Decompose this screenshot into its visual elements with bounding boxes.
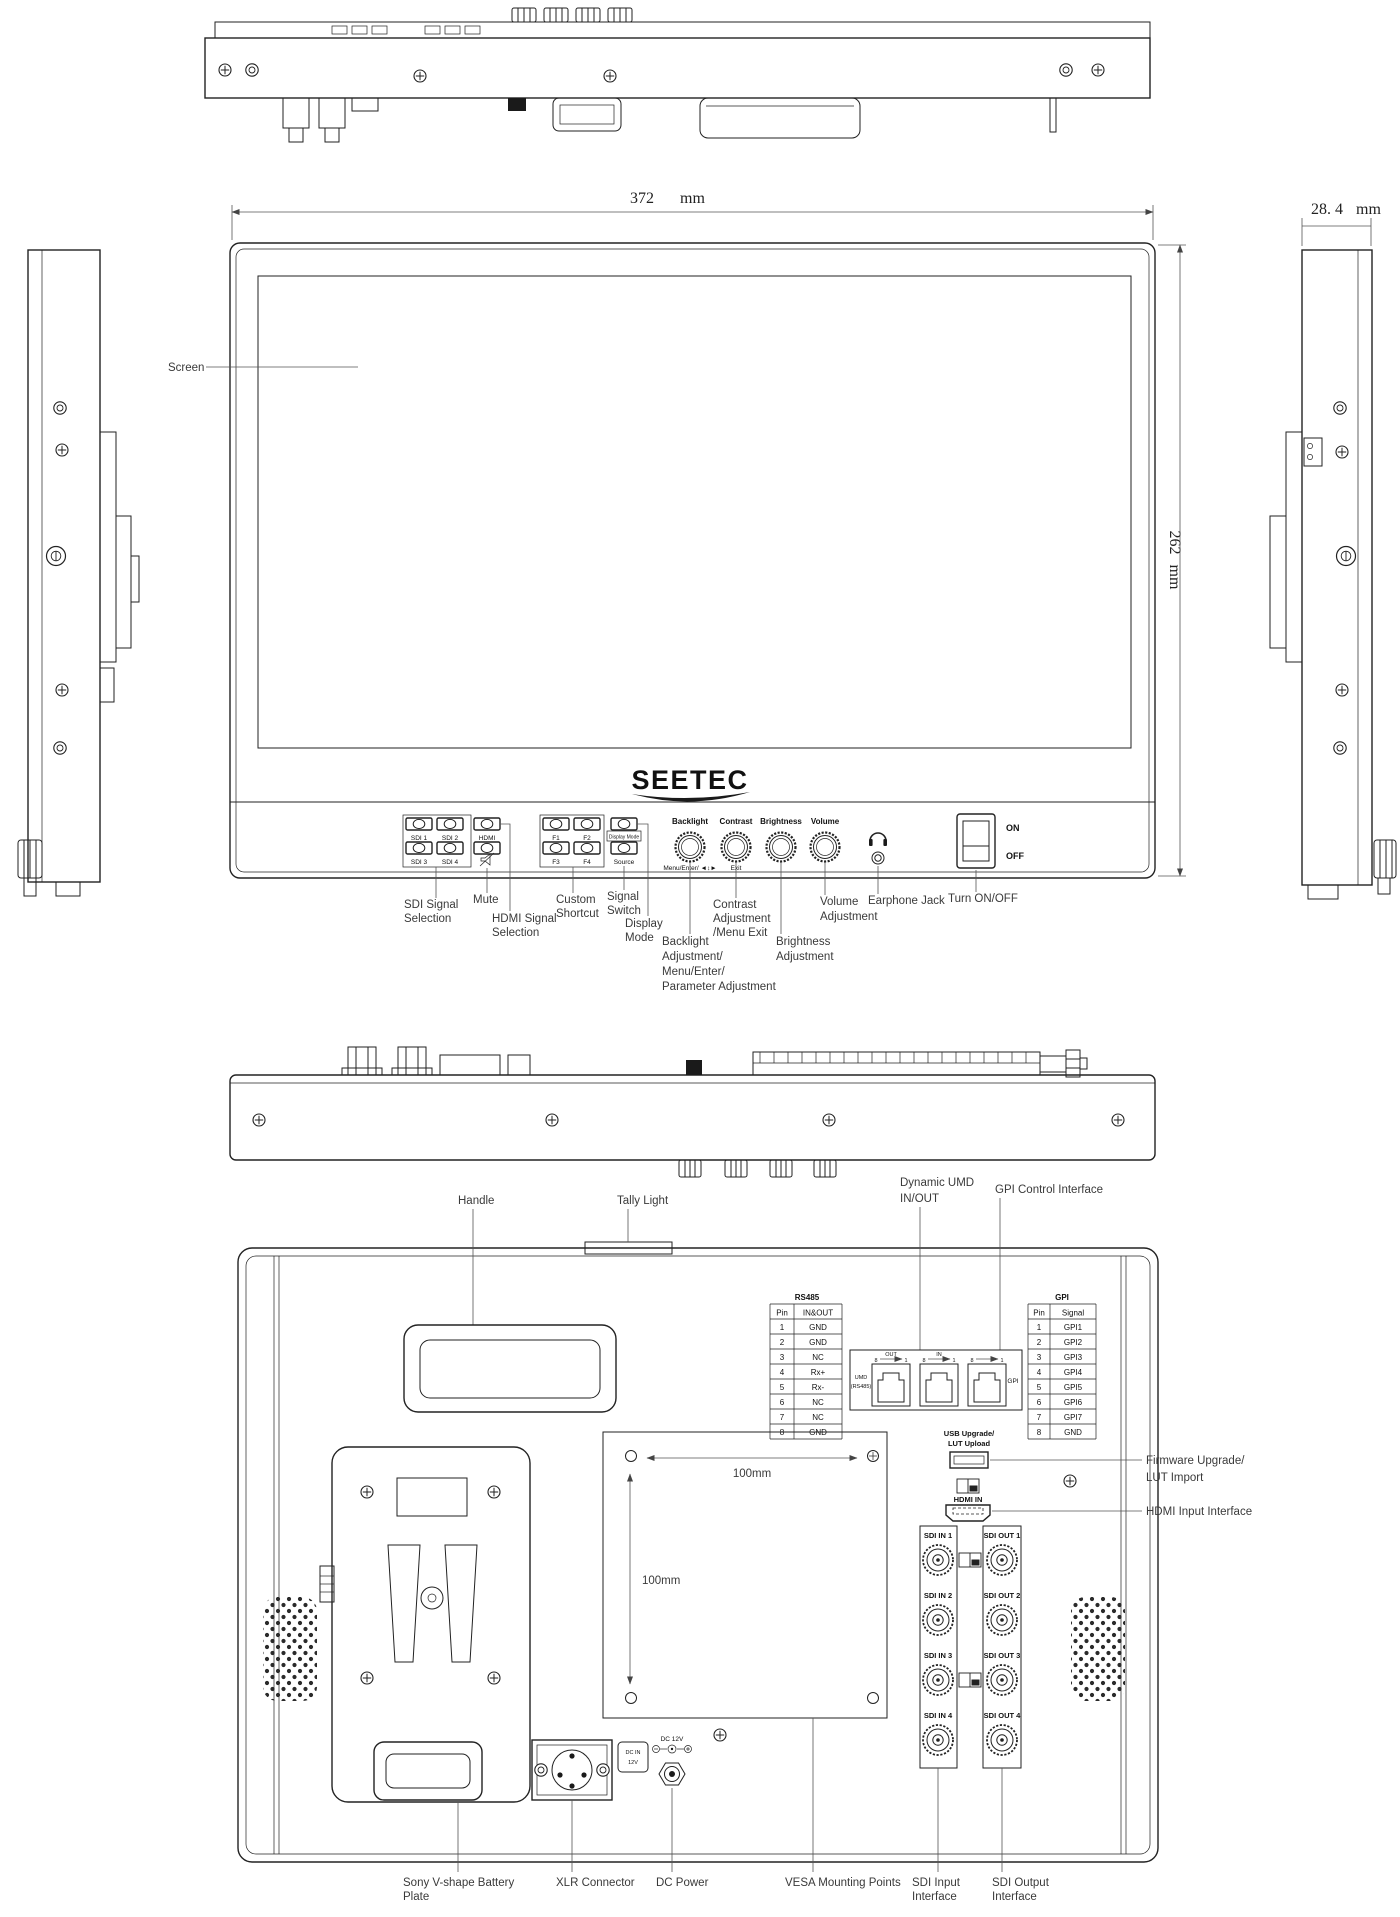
battery-spring-clip: [374, 1742, 482, 1800]
sdi2-label: SDI 2: [442, 835, 459, 842]
screw-icon: [604, 70, 616, 82]
locking-rod: [1040, 1050, 1087, 1077]
usb-port: USB Upgrade/ LUT Upload Firmware Upgrade…: [944, 1429, 1245, 1484]
big-ring-screw-icon: [47, 547, 66, 566]
brightness-knob-label: Brightness: [760, 817, 802, 826]
umd-label: (RS485): [851, 1384, 872, 1390]
in-label: IN: [936, 1352, 942, 1358]
rs485-cell: GND: [809, 1338, 827, 1347]
vesa-100mm-h: 100mm: [733, 1468, 771, 1480]
bottom-knob-stubs: [679, 1160, 836, 1177]
av-icon: [959, 1553, 981, 1567]
gpi-header-signal: Signal: [1062, 1309, 1084, 1318]
f3-button: [543, 842, 569, 854]
bottom-view: [230, 1047, 1155, 1177]
vesa-hole: [868, 1693, 879, 1704]
left-foot-knob: [18, 840, 42, 896]
contrast-knob-label: Contrast: [720, 817, 753, 826]
rs485-header-pin: Pin: [776, 1309, 788, 1318]
vesa-hole-screw: [868, 1451, 879, 1462]
callout-xlr: XLR Connector: [556, 1877, 635, 1889]
f1-label: F1: [552, 835, 560, 842]
gpi-cell: GND: [1064, 1428, 1082, 1437]
rs485-cell: NC: [812, 1413, 824, 1422]
depth-value: 28. 4: [1311, 201, 1343, 218]
umd-label: UMD: [855, 1375, 868, 1381]
sdi-out-2-connector: [987, 1605, 1017, 1635]
ring-screw-icon: [1334, 742, 1346, 754]
gpi-cell: GPI3: [1064, 1353, 1083, 1362]
f-button-group: F1 F2 F3 F4: [540, 815, 604, 867]
callout-handle: Handle: [458, 1195, 494, 1207]
ring-screw-icon: [597, 1764, 609, 1776]
pin8-label: 8: [970, 1358, 973, 1364]
callout-hdmi-in: HDMI Input Interface: [1146, 1506, 1252, 1518]
sdi-in-3-connector: [923, 1665, 953, 1695]
sdi-out-column: SDI OUT 1 SDI OUT 2 SDI OUT 3 SDI OUT 4: [983, 1526, 1021, 1768]
top-view-connectors: [283, 98, 1056, 142]
handle: [404, 1325, 616, 1412]
av-icon: [957, 1479, 979, 1493]
sdi-out-1-connector: [987, 1545, 1017, 1575]
screw-icon: [361, 1672, 373, 1684]
screw-icon: [56, 684, 68, 696]
sdi-in-2-label: SDI IN 2: [924, 1591, 952, 1600]
sdi3-label: SDI 3: [411, 859, 428, 866]
rs485-cell: 1: [780, 1323, 785, 1332]
callout-sdi-signal: SDI Signal: [404, 899, 458, 911]
callout-tally: Tally Light: [617, 1195, 669, 1207]
sdi-in-column: SDI IN 1 SDI IN 2 SDI IN 3 SDI IN 4: [920, 1526, 957, 1768]
brand-logo: SEETEC: [631, 765, 748, 795]
f4-button: [574, 842, 600, 854]
gpi-cell: 7: [1037, 1413, 1042, 1422]
rs485-cell: 5: [780, 1383, 785, 1392]
sdi-in-4-connector: [923, 1725, 953, 1755]
screw-icon: [1336, 684, 1348, 696]
callout-gpi: GPI Control Interface: [995, 1184, 1103, 1196]
ring-screw-icon: [1334, 402, 1346, 414]
v-mount-wedge: [445, 1545, 477, 1662]
screw-icon: [414, 70, 426, 82]
screw-icon: [219, 64, 231, 76]
display-source-column: Display Mode Source: [607, 818, 641, 866]
rs485-header-signal: IN&OUT: [803, 1309, 833, 1318]
display-mode-label: Display Mode: [609, 835, 640, 841]
hdmi-button-column: HDMI: [474, 818, 500, 866]
gpi-title: GPI: [1055, 1293, 1069, 1302]
gpi-cell: GPI4: [1064, 1368, 1083, 1377]
sdi-out-3-connector: [987, 1665, 1017, 1695]
callout-volume: Volume: [820, 896, 858, 908]
sdi2-button: [437, 818, 463, 830]
left-side-view: [18, 250, 139, 896]
gpi-cell: GPI2: [1064, 1338, 1083, 1347]
sdi4-label: SDI 4: [442, 859, 459, 866]
screw-icon: [714, 1729, 726, 1741]
callout-battery: Plate: [403, 1891, 429, 1903]
top-knobs: [512, 8, 632, 22]
rs485-title: RS485: [795, 1293, 820, 1302]
rs485-cell: Rx-: [812, 1383, 825, 1392]
callout-signal-switch: Signal: [607, 891, 639, 903]
sdi-in-1-label: SDI IN 1: [924, 1531, 952, 1540]
rs485-cell: 3: [780, 1353, 785, 1362]
callout-contrast: Adjustment: [713, 913, 771, 925]
hdmi-input: HDMI IN HDMI Input Interface: [946, 1479, 1252, 1521]
front-view: Screen SEETEC SDI 1 SDI 2 SDI 3 SDI 4 HD…: [168, 243, 1155, 993]
seetec-logo: SEETEC: [631, 765, 750, 802]
sdi-in-1-connector: [923, 1545, 953, 1575]
ring-screw-icon: [246, 64, 258, 76]
av-icon: [959, 1673, 981, 1687]
backlight-knob-label: Backlight: [672, 817, 708, 826]
vesa-100mm-v: 100mm: [642, 1575, 680, 1587]
dc-in-label: DC IN: [626, 1750, 641, 1756]
rs485-cell: Rx+: [811, 1368, 826, 1377]
sdi-out-2-label: SDI OUT 2: [984, 1591, 1021, 1600]
back-frame: [238, 1248, 1158, 1862]
earphone-jack: [869, 833, 887, 864]
sdi1-label: SDI 1: [411, 835, 428, 842]
pin8-label: 8: [874, 1358, 877, 1364]
sdi1-button: [406, 818, 432, 830]
vesa-mount: 100mm 100mm: [603, 1432, 887, 1718]
gpi-cell: GPI6: [1064, 1398, 1083, 1407]
sdi-out-4-label: SDI OUT 4: [984, 1711, 1022, 1720]
hdmi-button: [474, 818, 500, 830]
dc-in-label: 12V: [628, 1760, 638, 1766]
screw-icon: [1092, 64, 1104, 76]
callout-signal-switch: Switch: [607, 905, 641, 917]
gpi-cell: GPI1: [1064, 1323, 1083, 1332]
screw-icon: [488, 1672, 500, 1684]
f1-button: [543, 818, 569, 830]
battery-plate: [320, 1447, 530, 1802]
pin1-label: 1: [904, 1358, 907, 1364]
callout-brightness: Brightness: [776, 936, 831, 948]
seetec-monitor-diagram: 372 mm 28. 4 mm 262mm Screen SEETEC: [0, 0, 1400, 1917]
rs485-table: RS485 Pin IN&OUT 1GND 2GND 3NC 4Rx+ 5Rx-…: [770, 1293, 842, 1439]
f3-label: F3: [552, 859, 560, 866]
screen-callout: Screen: [168, 362, 358, 374]
screen-callout-label: Screen: [168, 362, 204, 374]
screw-icon: [56, 444, 68, 456]
gpi-cell: 6: [1037, 1398, 1042, 1407]
callout-power: Turn ON/OFF: [948, 893, 1018, 905]
top-view-body: [205, 38, 1150, 98]
diagram-canvas: 372 mm 28. 4 mm 262mm Screen SEETEC: [0, 0, 1400, 1917]
callout-backlight: Menu/Enter/: [662, 966, 725, 978]
gpi-cell: GPI7: [1064, 1413, 1083, 1422]
xlr-connector: [532, 1740, 612, 1800]
callout-brightness: Adjustment: [776, 951, 834, 963]
callout-contrast: Contrast: [713, 899, 757, 911]
rs485-cell: 7: [780, 1413, 785, 1422]
speaker-grille-left: [263, 1597, 317, 1701]
top-view: [205, 8, 1150, 142]
callout-sdi-output: SDI Output: [992, 1877, 1050, 1889]
mute-button: [474, 842, 500, 854]
sdi3-button: [406, 842, 432, 854]
volume-knob: [811, 833, 840, 862]
vesa-hole: [626, 1693, 637, 1704]
callout-vesa: VESA Mounting Points: [785, 1877, 901, 1889]
sdi-out-3-label: SDI OUT 3: [984, 1651, 1021, 1660]
out-label: OUT: [885, 1352, 897, 1358]
sdi-button-group: SDI 1 SDI 2 SDI 3 SDI 4: [403, 815, 471, 867]
callout-hdmi-signal: Selection: [492, 927, 539, 939]
rs485-cell: NC: [812, 1353, 824, 1362]
rj45-block: UMD (RS485) GPI OUT 8 1 IN 8 1: [850, 1350, 1022, 1410]
battery-plate-edge: [753, 1052, 1040, 1075]
screw-icon: [253, 1114, 265, 1126]
callout-sdi-output: Interface: [992, 1891, 1037, 1903]
sdi-out-1-label: SDI OUT 1: [984, 1531, 1021, 1540]
ring-screw-icon: [54, 742, 66, 754]
source-button: [611, 842, 637, 854]
callout-backlight: Parameter Adjustment: [662, 981, 777, 993]
callout-umd: Dynamic UMD: [900, 1177, 974, 1189]
ring-screw-icon: [535, 1764, 547, 1776]
width-value: 372: [630, 190, 654, 207]
callout-contrast: /Menu Exit: [713, 927, 768, 939]
speaker-grille-right: [1071, 1597, 1125, 1701]
gpi-table: GPI Pin Signal 1GPI1 2GPI2 3GPI3 4GPI4 5…: [1028, 1293, 1096, 1439]
gpi-cell: 8: [1037, 1428, 1042, 1437]
gpi-cell: GPI5: [1064, 1383, 1083, 1392]
power-off-label: OFF: [1006, 851, 1024, 861]
right-connector-block: [1304, 438, 1322, 466]
rj45-umd-in: IN 8 1: [920, 1352, 958, 1406]
rs485-cell: 6: [780, 1398, 785, 1407]
gpi-cell: 2: [1037, 1338, 1042, 1347]
rs485-cell: 4: [780, 1368, 785, 1377]
callout-display-mode: Mode: [625, 932, 654, 944]
power-switch: ON OFF: [957, 814, 1024, 868]
screw-icon: [1112, 1114, 1124, 1126]
gpi-cell: 5: [1037, 1383, 1042, 1392]
height-label: 262mm: [1166, 531, 1183, 590]
depth-dimension: 28. 4 mm: [1302, 201, 1381, 246]
callout-firmware: Firmware Upgrade/: [1146, 1455, 1245, 1467]
callout-sdi-input: SDI Input: [912, 1877, 961, 1889]
dc-jack: [659, 1763, 685, 1785]
mute-icon: [480, 853, 494, 866]
screw-icon: [1336, 446, 1348, 458]
pin8-label: 8: [922, 1358, 925, 1364]
top-view-strip: [215, 22, 1150, 38]
display-mode-button: [611, 818, 637, 830]
height-dimension: 262mm: [1158, 245, 1186, 876]
v-mount-wedge: [388, 1545, 420, 1662]
vesa-hole: [626, 1451, 637, 1462]
pin1-label: 1: [952, 1358, 955, 1364]
callout-hdmi-signal: HDMI Signal: [492, 913, 557, 925]
volume-knob-label: Volume: [811, 817, 840, 826]
dc-power-area: DC IN 12V DC 12V: [618, 1736, 692, 1785]
width-unit: mm: [680, 190, 705, 207]
right-foot-knob: [1374, 840, 1396, 894]
sdi-in-4-label: SDI IN 4: [924, 1711, 953, 1720]
ring-screw-icon: [54, 402, 66, 414]
sdi-out-4-connector: [987, 1725, 1017, 1755]
gpi-cell: 4: [1037, 1368, 1042, 1377]
callout-sdi-input: Interface: [912, 1891, 957, 1903]
f2-label: F2: [583, 835, 591, 842]
ring-screw-icon: [1060, 64, 1072, 76]
usb-label: USB Upgrade/: [944, 1429, 995, 1438]
polarity-icon: [653, 1745, 692, 1753]
callout-umd: IN/OUT: [900, 1193, 939, 1205]
backlight-knob: [676, 833, 705, 862]
callout-sdi-signal: Selection: [404, 913, 451, 925]
vent-slots: [332, 26, 480, 34]
sdi-in-3-label: SDI IN 3: [924, 1651, 952, 1660]
callout-mute: Mute: [473, 894, 499, 906]
hdmi-in-label: HDMI IN: [954, 1495, 983, 1504]
source-label: Source: [614, 859, 635, 866]
callout-backlight: Adjustment/: [662, 951, 724, 963]
sdi-in-2-connector: [923, 1605, 953, 1635]
bottom-view-connectors: [342, 1047, 1087, 1077]
depth-unit: mm: [1356, 201, 1381, 218]
power-on-label: ON: [1006, 823, 1020, 833]
gpi-cell: 3: [1037, 1353, 1042, 1362]
callout-display-mode: Display: [625, 918, 663, 930]
screw-icon: [361, 1486, 373, 1498]
brightness-knob: [767, 833, 796, 862]
gpi-port-label: GPI: [1007, 1378, 1018, 1385]
usb-label: LUT Upload: [948, 1439, 990, 1448]
screen: [258, 276, 1131, 748]
screw-icon: [488, 1486, 500, 1498]
rs485-cell: 2: [780, 1338, 785, 1347]
big-ring-screw-icon: [1337, 547, 1356, 566]
dc-12v-label: DC 12V: [661, 1736, 684, 1743]
rj45-gpi: 8 1: [968, 1358, 1006, 1406]
pin1-label: 1: [1000, 1358, 1003, 1364]
callout-battery: Sony V-shape Battery: [403, 1877, 514, 1889]
screw-icon: [546, 1114, 558, 1126]
callout-volume: Adjustment: [820, 911, 878, 923]
rs485-cell: NC: [812, 1398, 824, 1407]
callout-firmware: LUT Import: [1146, 1472, 1204, 1484]
f2-button: [574, 818, 600, 830]
screw-icon: [1064, 1475, 1076, 1487]
gpi-cell: 1: [1037, 1323, 1042, 1332]
sdi4-button: [437, 842, 463, 854]
hdmi-label: HDMI: [479, 835, 496, 842]
gpi-header-pin: Pin: [1033, 1309, 1045, 1318]
contrast-knob: [722, 833, 751, 862]
screw-icon: [823, 1114, 835, 1126]
width-dimension: 372 mm: [232, 190, 1153, 240]
rs485-cell: GND: [809, 1323, 827, 1332]
callout-dc: DC Power: [656, 1877, 709, 1889]
f4-label: F4: [583, 859, 591, 866]
callout-earphone: Earphone Jack: [868, 895, 945, 907]
callout-custom-shortcut: Shortcut: [556, 908, 600, 920]
callout-backlight: Backlight: [662, 936, 709, 948]
back-view: Handle Tally Light Dynamic UMD IN/OUT GP…: [238, 1177, 1252, 1903]
callout-custom-shortcut: Custom: [556, 894, 596, 906]
rj45-umd-out: OUT 8 1: [872, 1352, 910, 1406]
right-side-view: [1270, 250, 1396, 899]
